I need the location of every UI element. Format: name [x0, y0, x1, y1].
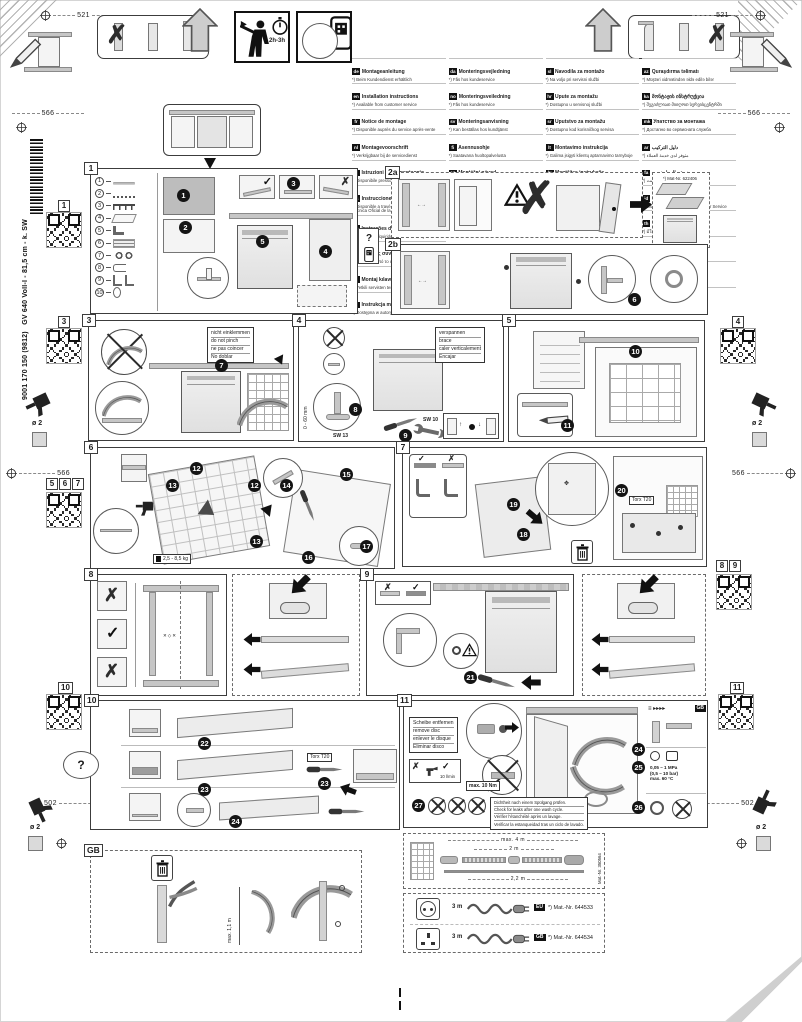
- language-code-tag: az: [642, 68, 650, 75]
- parts-list-item: 4: [95, 212, 153, 224]
- panel-figure: [148, 23, 158, 51]
- drill-depth-block: [28, 836, 43, 851]
- panel-tag: 3: [82, 314, 96, 327]
- cross-mark: ✗: [104, 662, 119, 680]
- note-line: do not pinch: [211, 337, 250, 345]
- aerator-inset-circle: [466, 703, 522, 759]
- cabinet-row-hint-box: [163, 104, 261, 156]
- drill-diameter-label: ø 2: [30, 824, 40, 832]
- hose-icon: [572, 731, 628, 767]
- plinth-strip: [132, 767, 158, 775]
- language-column-1: deMontageanleitung*) Beim Kundendienst e…: [352, 58, 446, 170]
- part-leader-line: [106, 218, 111, 219]
- dimension-label: 566: [732, 470, 745, 477]
- qr-step-tags-567: 567: [46, 478, 84, 490]
- hook-profile: [444, 479, 458, 497]
- cross-section-inset: [93, 508, 139, 554]
- part-leader-line: [106, 181, 111, 182]
- right-arrow-icon: [630, 196, 652, 213]
- dimension-502-left: 502: [44, 800, 96, 807]
- adjust-arrows-glyph: ✥: [564, 481, 569, 488]
- lip-figure: [638, 21, 654, 25]
- plug-mat-number: *) Mat.-Nr. 644534: [548, 935, 593, 941]
- cable-length-label: 3 m: [452, 934, 462, 941]
- language-title: Monteringsanvisning: [458, 119, 508, 125]
- rail-strip-figure: [591, 631, 699, 647]
- pencil-marking-figure-left: [10, 26, 74, 80]
- step-badge: 12: [248, 479, 261, 492]
- language-title: Asennusohje: [458, 145, 489, 151]
- panel-tag: 1: [84, 162, 98, 175]
- panel-step-3: 3 nicht einklemmendo not pinchne pas coi…: [88, 320, 294, 441]
- push-arrow-icon: [521, 675, 541, 690]
- do-not-pinch-note: nicht einklemmendo not pinchne pas coinc…: [207, 327, 254, 363]
- clip-figure: [186, 808, 204, 813]
- language-note: *) Dostupno kod korisničkog servisa: [546, 128, 640, 133]
- step-badge: 13: [250, 535, 263, 548]
- qr-code-steps-8-9: [716, 574, 752, 610]
- clip-detail-inset: [339, 526, 379, 566]
- door-weight-label: 2,5 - 8,5 kg: [153, 554, 191, 564]
- qr-step-tag: 5: [46, 478, 58, 490]
- language-code-tag: lt: [546, 144, 554, 151]
- parts-list: 1 2 3 4: [95, 175, 153, 299]
- install-time-label: 2h-3h: [269, 38, 285, 45]
- language-code-tag: sv: [449, 119, 457, 126]
- push-arrow-icon: [505, 722, 519, 733]
- step-badge: 19: [507, 498, 520, 511]
- gap-check-box: ✗ ✓: [375, 581, 431, 605]
- socket-holes: [420, 901, 436, 917]
- grommet-figure: [665, 270, 683, 288]
- cabinet-figure: [556, 185, 600, 231]
- note-line: enlever le disque: [413, 735, 454, 743]
- no-twist-circle: [448, 797, 466, 815]
- strip-figure: [243, 187, 271, 197]
- screw-dot: [678, 525, 683, 530]
- part-icon: [113, 264, 126, 272]
- language-code-tag: no: [449, 93, 458, 100]
- panel-step-8: 8 ✗ ✓ ✗ ✕ ◇ ✕: [90, 574, 227, 696]
- drill-target-icon: [56, 838, 67, 849]
- edge-strip: [122, 465, 146, 470]
- part-number: 4: [95, 214, 104, 223]
- page-curl: [724, 956, 802, 1022]
- hose-coupling: [564, 855, 584, 865]
- center-marks: ✕ ◇ ✕: [163, 633, 176, 638]
- part-leader-line: [106, 255, 111, 256]
- screw-head-dot: [452, 646, 461, 655]
- niche-dim-mark: ←→: [418, 278, 427, 283]
- pivot-dot: [469, 424, 475, 430]
- model-info-text: 9001 170 150 (9812) GV 640 Voll-I - 81,5…: [22, 220, 29, 400]
- drill-diameter-label: ø 2: [756, 824, 766, 832]
- niche-side: [438, 255, 446, 305]
- up-arrow-glyph: ↑: [459, 422, 462, 429]
- push-arrow-icon: [243, 633, 261, 646]
- cross-mark: ✗: [412, 762, 420, 771]
- push-arrow-icon: [591, 663, 609, 676]
- language-note: *) Müştəri xidmətindən əldə edilə bilər: [642, 78, 736, 83]
- rail-figure: [609, 636, 695, 643]
- qr-step-tag-3: 3: [58, 316, 70, 328]
- cabinet-cube-wrong: ✗: [97, 657, 127, 687]
- drill-depth-block: [32, 432, 47, 447]
- plug-region-tag: EU: [534, 904, 545, 911]
- dishwasher-figure: [485, 591, 557, 673]
- language-entry: slNavodila za montažo*) Na voljo pri ser…: [546, 58, 640, 83]
- language-code-tag: ka: [642, 93, 650, 100]
- pressure-line: max. 60 °C: [650, 776, 678, 782]
- divider: [157, 173, 158, 311]
- cross-mark: ✗: [106, 23, 127, 48]
- dimension-label: 2,2 m: [511, 876, 526, 882]
- question-cloud: ?: [63, 751, 99, 779]
- panel-step-2a: 2a ←→ ✗: [391, 172, 643, 238]
- dimension-label: 521: [77, 12, 90, 19]
- step-badge: 24: [229, 815, 242, 828]
- warning-figure: ✗: [500, 177, 630, 235]
- no-pinch-circle: [101, 329, 147, 375]
- part-leader-line: [106, 230, 111, 231]
- screwdriver-icon: [476, 670, 518, 694]
- panel-8-detail-box: [232, 574, 360, 696]
- wrench-size-label: SW 13: [333, 433, 348, 439]
- part-number: 5: [95, 226, 104, 235]
- door-panel-figure: [599, 182, 622, 234]
- part-icon: [113, 239, 135, 248]
- panel-tag: 2a: [385, 166, 400, 179]
- section-line: [100, 529, 132, 532]
- cable-length-label: 3 m: [452, 904, 462, 911]
- panel-profile-allowed-flat: [140, 21, 166, 53]
- corner-mark: [198, 500, 227, 528]
- language-code-tag: mk: [642, 119, 652, 126]
- power-cable-icon: [466, 929, 530, 949]
- template-sheet-figure: [533, 331, 585, 389]
- cross-mark: ✗: [341, 177, 350, 188]
- cabinet-door: [197, 116, 227, 148]
- up-arrow-icon-left: [182, 8, 218, 52]
- niche-centering-figure: ✕ ◇ ✕: [143, 585, 219, 687]
- question-label: ?: [366, 233, 372, 244]
- rail-strip-figure-angled: [591, 659, 699, 683]
- drill-target-icon: [736, 838, 747, 849]
- hook-check-box: ✓ ✗: [409, 454, 467, 518]
- no-kink-circle: [428, 797, 446, 815]
- rail-strip-figure-angled: [243, 659, 351, 683]
- note-line: caler verticalement: [439, 345, 481, 353]
- barcode: [30, 138, 43, 214]
- stopwatch-icon: [272, 17, 288, 36]
- language-code-tag: hr: [546, 93, 554, 100]
- power-cable-icon: [466, 899, 530, 919]
- qr-code-step-10: [46, 694, 82, 730]
- step-badge: 3: [287, 177, 300, 190]
- installer-time-box: 2h-3h: [234, 11, 290, 63]
- panel-tag: 11: [397, 694, 412, 707]
- door-rack-figure: [609, 363, 681, 423]
- panel-step-9: 9 ✗ ✓ 21: [366, 574, 574, 696]
- divider: [646, 747, 706, 748]
- qr-code-steps-5-6-7: [46, 492, 82, 528]
- panel-step-6: 6 12 13 12 13 14 15 16 17 2,5 - 8,5 kg: [90, 447, 395, 569]
- part-icon: [113, 287, 121, 298]
- drill-depth-block: [756, 836, 771, 851]
- dimension-label: 502: [44, 800, 57, 807]
- part-number: 1: [95, 177, 104, 186]
- language-note: *) Verkrijgbaar bij de servicedienst: [352, 154, 446, 159]
- language-note: *) Kan beställas hos kundtjänst: [449, 128, 543, 133]
- plug-row-gb: 3 m GB *) Mat.-Nr. 644534: [404, 924, 606, 954]
- dimension-lower: 2,2 m: [468, 876, 568, 882]
- qr-code-step-4: [720, 328, 756, 364]
- screw-dot: [656, 531, 661, 536]
- counter-top: [143, 585, 219, 592]
- strip-figure: [284, 190, 312, 194]
- language-title: Monteringsvejledning: [459, 69, 511, 75]
- panel-tag: GB: [84, 844, 103, 857]
- plug-variants-box: 3 m EU *) Mat.-Nr. 644533 3 m GB *) Mat.…: [403, 893, 605, 953]
- note-line: Verificar la estanqueidad tras un ciclo …: [494, 820, 584, 827]
- center-line: [180, 581, 181, 689]
- qr-step-tag-1: 1: [58, 200, 70, 212]
- step-badge: 12: [190, 462, 203, 475]
- parts-list-item: 3: [95, 200, 153, 212]
- warning-triangle-icon: [462, 643, 477, 657]
- panel-tag: 7: [396, 441, 410, 454]
- tap-icon: [424, 764, 440, 778]
- step-badge: 11: [561, 419, 574, 432]
- push-arrow-icon: [633, 570, 663, 600]
- plinth-rail-figure: [177, 708, 293, 738]
- panel-tag: 2b: [385, 238, 401, 251]
- qr-step-tag-10: 10: [58, 682, 73, 694]
- panel-step-7: 7 ✓ ✗ 19 18 ✥ 20 Torx T20: [402, 447, 707, 567]
- plinth-rail-figure: [177, 750, 293, 780]
- part-number: 3: [95, 201, 104, 210]
- accessory-mat-number: *) Mat-Nr. 622406: [663, 176, 697, 181]
- language-entry: fiAsennusohje*) Saatavana huoltopalvelus…: [449, 134, 543, 159]
- hose-mat-number: Mat.-Nr. 350564: [597, 840, 602, 884]
- qr-code-step-1: [46, 212, 82, 248]
- part-leader-line: [106, 205, 111, 206]
- cross-mark: ✗: [104, 586, 119, 604]
- note-line: nicht einklemmen: [211, 330, 250, 336]
- panel-tag: 9: [360, 568, 374, 581]
- language-note: *) Достапно во сервисната служба: [642, 128, 736, 133]
- rail-figure: [609, 663, 695, 678]
- side-panel: [149, 592, 156, 676]
- weight-value: 2,5 - 8,5 kg: [163, 556, 188, 562]
- language-entry: enInstallation instructions*) Available …: [352, 83, 446, 108]
- language-entry: kaმონტაჟის ინსტრუქცია*) შეგიძლიათ მიიღოთ…: [642, 83, 736, 108]
- hose-height-label: max. 1,1 m: [227, 891, 233, 943]
- plinth-variant-icon: [129, 709, 161, 737]
- part-icon: [111, 214, 137, 223]
- language-title: Notice de montage: [362, 119, 407, 125]
- panel-tag: 5: [502, 314, 516, 327]
- hose-outlet-figure: [297, 285, 347, 307]
- hose-segment: [462, 857, 506, 863]
- check-mark: ✓: [263, 177, 272, 188]
- niche-figure: ←→: [400, 251, 450, 309]
- row-divider: [121, 745, 395, 746]
- uk-drain-row: ≡ ▸▸▸▸ GB: [648, 705, 706, 717]
- panel-tag: 4: [292, 314, 306, 327]
- spacer-part-figure: [656, 183, 693, 195]
- foot-base-figure: [326, 414, 350, 420]
- panel-types-box-right: ✗: [628, 15, 740, 59]
- step-badge: 26: [632, 801, 645, 814]
- hose-coupling: [440, 856, 458, 864]
- language-code-tag: fa: [642, 170, 650, 177]
- check-mark: ✓: [106, 626, 119, 642]
- language-column-2: daMonteringsvejledning*) Fås hos kundese…: [449, 58, 543, 170]
- language-title: Montagevoorschrift: [362, 145, 409, 151]
- panel-accessory-2a: *) Mat-Nr. 622406: [652, 172, 710, 248]
- note-line: Dichtheit nach einem Spülgang prüfen.: [494, 800, 584, 805]
- instruction-sheet-page: 521 ✗ 2h-3h ✗ 521: [0, 0, 802, 1022]
- plinth-installed-figure: [353, 749, 397, 783]
- push-arrow-icon: [243, 663, 261, 676]
- language-entry: nlMontagevoorschrift*) Verkrijgbaar bij …: [352, 134, 446, 159]
- plug-mat-number: *) Mat.-Nr. 644533: [548, 905, 593, 911]
- dishwasher-figure: [181, 371, 241, 433]
- panel-edge-figure: [121, 454, 147, 482]
- remove-disc-note: Scheibe entfernenremove discenlever le d…: [409, 717, 458, 753]
- language-title: მონტაჟის ინსტრუქცია: [652, 94, 704, 100]
- step-badge: 4: [319, 245, 332, 258]
- trash-box: [571, 540, 593, 564]
- language-column-3: slNavodila za montažo*) Na voljo pri ser…: [546, 58, 640, 170]
- language-note: *) Fås hos kundeservice: [449, 103, 543, 108]
- step-badge: 1: [177, 189, 190, 202]
- plinth-variant-icon: [129, 751, 161, 779]
- part-icon: [113, 226, 124, 235]
- panel-figure: [644, 23, 654, 51]
- divider: [646, 793, 706, 794]
- step-badge: 23: [318, 777, 331, 790]
- language-note: *) შეგიძლიათ მიიღოთ სერვისცენტრში: [642, 103, 736, 108]
- cross-mark: ✗: [518, 177, 555, 221]
- part-icon: [113, 182, 135, 185]
- plinth-variant-icon: [129, 793, 161, 821]
- language-code-tag: fi: [449, 144, 457, 151]
- parts-list-item: 2: [95, 187, 153, 199]
- language-code-tag: fr: [352, 119, 360, 126]
- flow-check-box: ✗ ✓ 10 l/min: [409, 759, 461, 783]
- screw-dot: [630, 523, 635, 528]
- cross-mark: ✗: [448, 455, 455, 463]
- fold-mark: [399, 988, 401, 997]
- qr-step-tag: 9: [729, 560, 741, 572]
- gauge-figure: [650, 751, 660, 761]
- drill-target-icon: [774, 122, 785, 133]
- screw-dot: [504, 265, 509, 270]
- parts-list-item: 8: [95, 262, 153, 274]
- parts-list-item: 6: [95, 237, 153, 249]
- pencil-icon: [760, 36, 794, 70]
- language-note: *) Disponible auprès du service après-ve…: [352, 128, 446, 133]
- language-title: Упатство за монтажа: [653, 119, 705, 125]
- screw-dot: [576, 279, 581, 284]
- dimension-566-top-left: 566: [12, 110, 84, 117]
- qr-step-tag: 8: [716, 560, 728, 572]
- fold-mark: [399, 1001, 401, 1010]
- hinge-figure: [607, 278, 623, 283]
- language-code-tag: da: [449, 68, 457, 75]
- cabinet-base-figure: [613, 456, 703, 560]
- language-code-tag: nl: [352, 144, 360, 151]
- pencil-marking-figure-right: [728, 26, 792, 80]
- wrench-size-label: SW 10: [423, 417, 438, 423]
- dimension-upper: 2 m: [474, 846, 554, 852]
- flow-rate-label: 10 l/min: [440, 774, 455, 779]
- corner-clip-figure: [269, 583, 327, 619]
- step-badge: 17: [360, 540, 373, 553]
- height-range-label: 0 - 60 mm: [303, 383, 309, 429]
- panel-tag: 8: [84, 568, 98, 581]
- dimension-521-right: 521: [692, 10, 766, 21]
- door-corner-figure: [548, 463, 596, 515]
- push-arrow-icon: [285, 570, 315, 600]
- language-code-tag: de: [352, 68, 360, 75]
- shim-figure: [328, 363, 340, 366]
- foot-screw-figure: [334, 392, 341, 414]
- language-note: *) Saatavana huoltopalvelusta: [449, 154, 543, 159]
- panel-tag: 6: [84, 441, 98, 454]
- no-siphon-circle: [672, 799, 692, 819]
- step-badge: 23: [198, 783, 211, 796]
- part-number: 9: [95, 276, 104, 285]
- part-leader-line: [106, 193, 111, 194]
- qr-zoom-circle: [302, 23, 338, 59]
- language-code-tag: th: [642, 220, 650, 227]
- language-title: Montavimo instrukcija: [555, 145, 608, 151]
- plinth-strip: [132, 728, 158, 733]
- clamp-figure: [650, 801, 664, 815]
- cabinet-cube-wrong: ✗: [97, 581, 127, 611]
- part-icon: [113, 250, 135, 261]
- drill-depth-block: [752, 432, 767, 447]
- hose-coupling: [508, 856, 520, 864]
- language-note: *) Dostupno u servisnoj službi: [546, 103, 640, 108]
- cabinet-door: [229, 116, 253, 148]
- language-entry: daMonteringsvejledning*) Fås hos kundese…: [449, 58, 543, 83]
- socket-uk-icon: [416, 928, 440, 950]
- screwdriver-icon: [305, 763, 345, 776]
- corner-clip-figure: [617, 583, 675, 619]
- language-entry: azQuraşdırma təlimatı*) Müştəri xidmətin…: [642, 58, 736, 83]
- socket-eu-icon: [416, 898, 440, 920]
- panel-profile-allowed-lipped: [636, 21, 662, 53]
- step-badge: 25: [632, 761, 645, 774]
- drill-target-icon: [16, 122, 27, 133]
- screwdriver-icon: [327, 805, 367, 818]
- step-badge: 6: [628, 293, 641, 306]
- door-center-inset: ✥: [535, 452, 609, 526]
- leak-check-note: Dichtheit nach einem Spülgang prüfen.Che…: [490, 797, 588, 830]
- qr-code-step-11: [718, 694, 754, 730]
- qr-step-tag: 7: [72, 478, 84, 490]
- fitting-figure: [491, 772, 515, 779]
- note-line: remove disc: [413, 727, 454, 735]
- counter-top: [526, 707, 638, 714]
- qr-step-tags-89: 89: [716, 560, 741, 572]
- valve-figure: [666, 751, 678, 761]
- panel-step-5: 5 10 11: [508, 320, 705, 442]
